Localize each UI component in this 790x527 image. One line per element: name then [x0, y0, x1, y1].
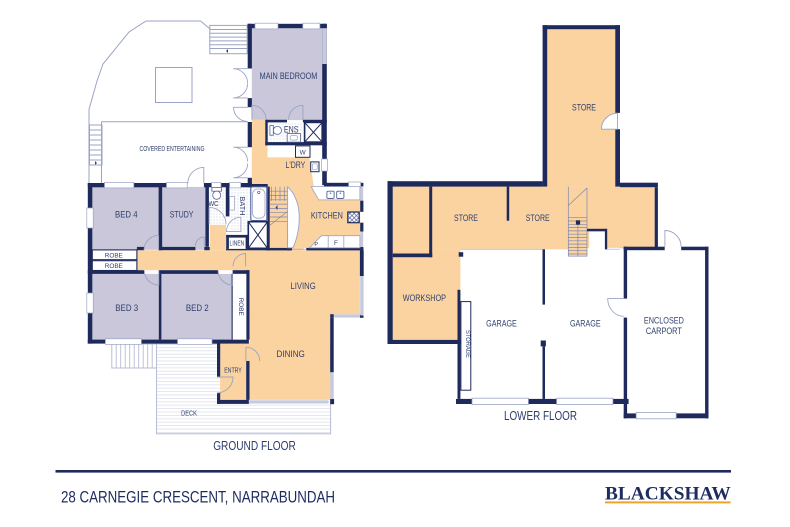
svg-text:GARAGE: GARAGE — [570, 318, 601, 328]
svg-text:ROBE: ROBE — [237, 298, 244, 317]
svg-text:L'DRY: L'DRY — [286, 160, 306, 170]
svg-text:BED 4: BED 4 — [115, 210, 138, 220]
svg-text:BED 3: BED 3 — [115, 303, 138, 313]
svg-text:BED 2: BED 2 — [186, 303, 209, 313]
svg-text:ENTRY: ENTRY — [224, 368, 242, 375]
svg-text:F: F — [334, 240, 338, 247]
svg-text:STORE: STORE — [526, 213, 550, 223]
svg-text:ROBE: ROBE — [105, 252, 124, 259]
svg-text:LOWER FLOOR: LOWER FLOOR — [504, 409, 577, 423]
svg-text:STORAGE: STORAGE — [464, 330, 471, 358]
svg-text:BATH: BATH — [238, 197, 247, 216]
svg-text:W: W — [300, 149, 307, 156]
svg-text:DECK: DECK — [181, 411, 197, 418]
svg-text:28 CARNEGIE CRESCENT, NARRABUN: 28 CARNEGIE CRESCENT, NARRABUNDAH — [61, 487, 335, 506]
svg-text:CARPORT: CARPORT — [646, 326, 682, 336]
svg-text:ROBE: ROBE — [105, 263, 124, 270]
svg-text:STORE: STORE — [454, 213, 478, 223]
svg-text:DINING: DINING — [277, 349, 305, 359]
svg-text:KITCHEN: KITCHEN — [311, 211, 343, 221]
svg-text:LINEN: LINEN — [230, 240, 245, 247]
svg-text:ENCLOSED: ENCLOSED — [644, 316, 684, 326]
svg-text:WORKSHOP: WORKSHOP — [403, 293, 446, 303]
svg-text:MAIN BEDROOM: MAIN BEDROOM — [260, 71, 318, 81]
svg-text:GARAGE: GARAGE — [486, 318, 517, 328]
svg-text:STUDY: STUDY — [170, 210, 194, 220]
svg-text:WC: WC — [208, 199, 219, 208]
svg-text:P: P — [314, 242, 318, 248]
svg-text:LIVING: LIVING — [291, 281, 316, 291]
svg-text:COVERED ENTERTAINING: COVERED ENTERTAINING — [140, 146, 205, 153]
svg-text:ENS: ENS — [284, 124, 299, 134]
svg-text:GROUND FLOOR: GROUND FLOOR — [213, 439, 296, 453]
svg-text:STORE: STORE — [572, 102, 596, 112]
